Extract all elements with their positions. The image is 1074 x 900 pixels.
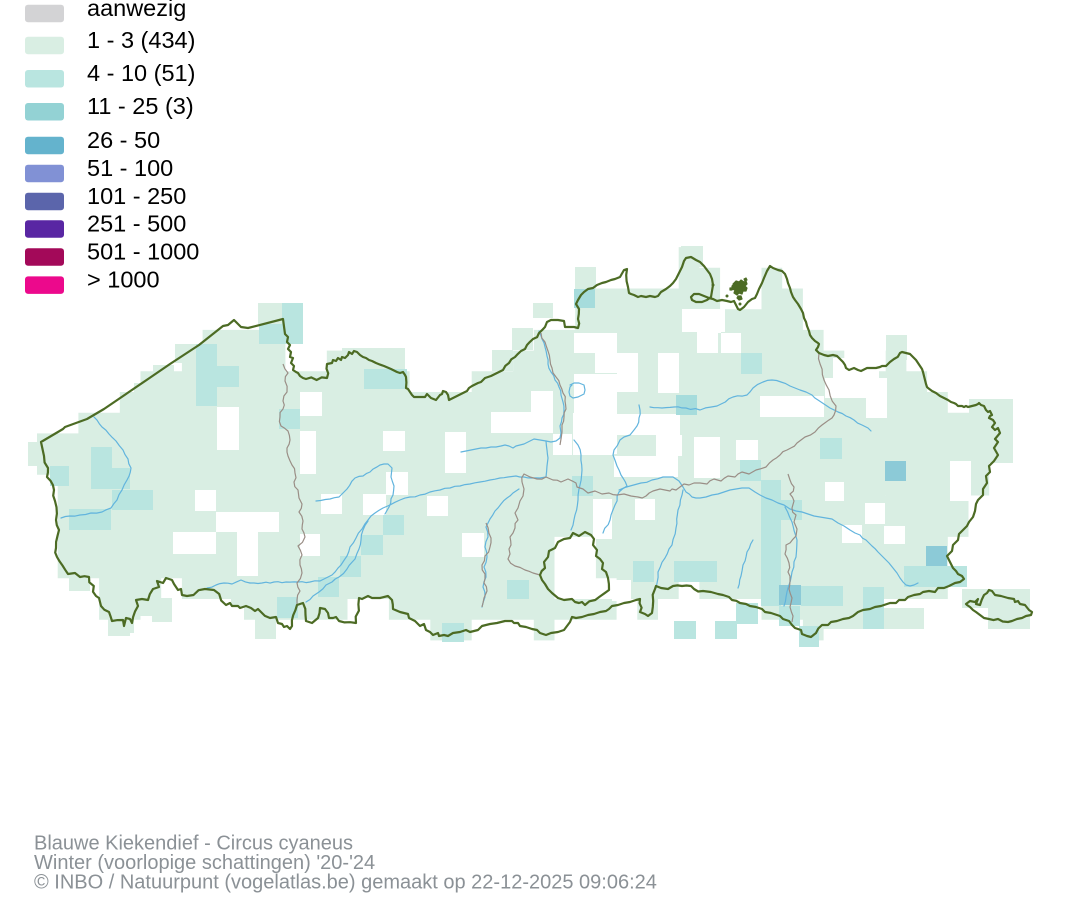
svg-text:26 - 50: 26 - 50 bbox=[87, 127, 160, 153]
svg-text:101 - 250: 101 - 250 bbox=[87, 183, 186, 209]
svg-text:11 - 25 (3): 11 - 25 (3) bbox=[87, 93, 194, 119]
svg-text:51 - 100: 51 - 100 bbox=[87, 155, 173, 181]
svg-text:501 - 1000: 501 - 1000 bbox=[87, 239, 199, 265]
svg-text:251 - 500: 251 - 500 bbox=[87, 210, 186, 236]
svg-text:1 - 3 (434): 1 - 3 (434) bbox=[87, 27, 195, 53]
svg-text:4 - 10 (51): 4 - 10 (51) bbox=[87, 60, 195, 86]
svg-text:© INBO / Natuurpunt (vogelatla: © INBO / Natuurpunt (vogelatlas.be) gema… bbox=[34, 872, 657, 894]
svg-text:> 1000: > 1000 bbox=[87, 267, 160, 293]
svg-text:aanwezig: aanwezig bbox=[87, 0, 186, 21]
